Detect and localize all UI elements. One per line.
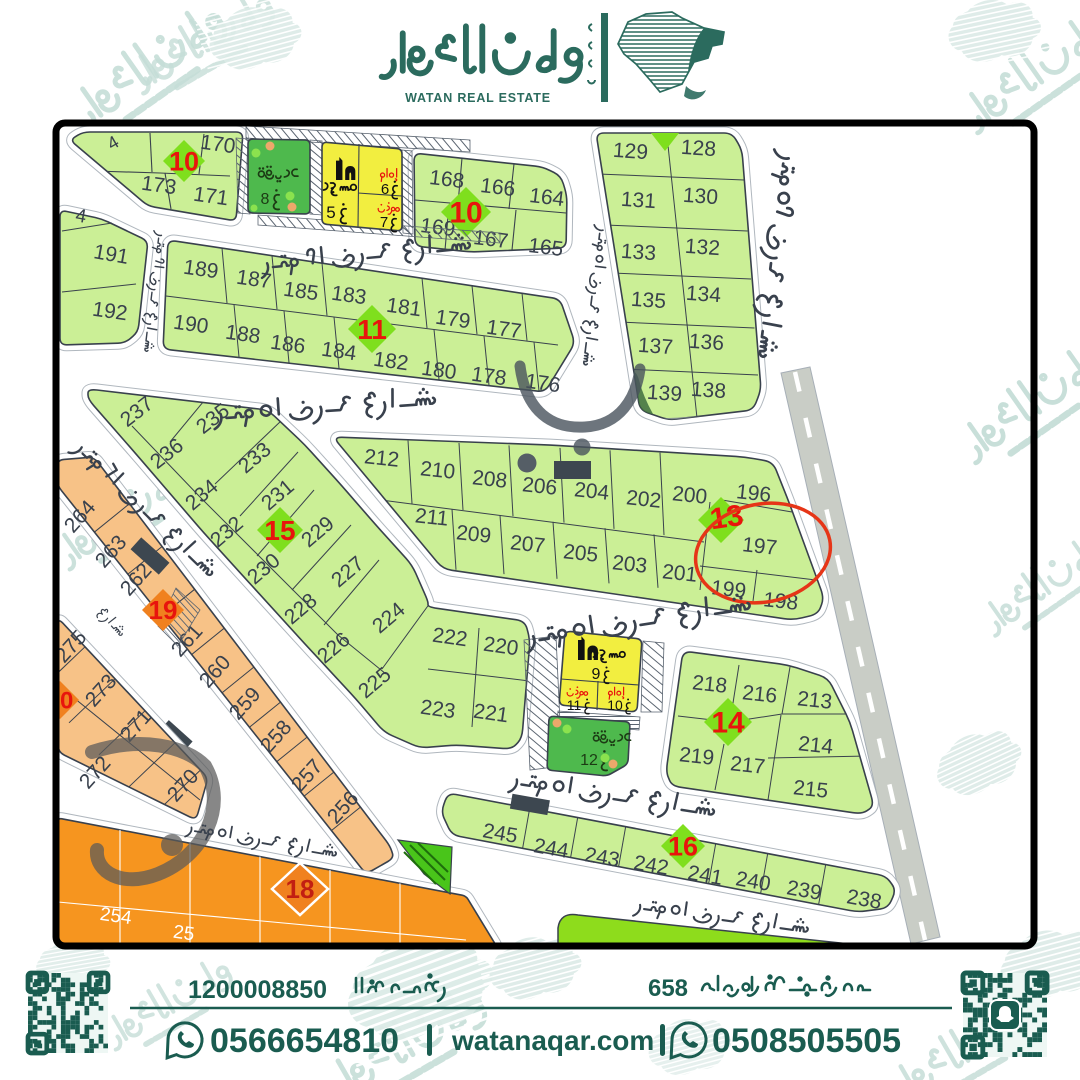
svg-text:182: 182: [372, 348, 410, 376]
svg-text:178: 178: [470, 363, 508, 391]
svg-text:190: 190: [172, 311, 210, 339]
svg-text:171: 171: [192, 183, 230, 211]
svg-text:134: 134: [685, 282, 722, 307]
svg-text:135: 135: [630, 288, 667, 313]
svg-text:658: 658: [648, 975, 688, 1002]
svg-text:189: 189: [182, 256, 220, 284]
svg-text:181: 181: [385, 294, 423, 322]
svg-text:170: 170: [199, 131, 237, 159]
svg-text:WATAN REAL ESTATE: WATAN REAL ESTATE: [405, 91, 551, 105]
svg-text:10: 10: [449, 197, 482, 230]
svg-text:9: 9: [592, 666, 601, 683]
svg-text:7: 7: [380, 214, 388, 231]
svg-text:212: 212: [363, 445, 400, 472]
svg-text:132: 132: [684, 235, 721, 260]
svg-text:18: 18: [286, 874, 315, 904]
svg-text:177: 177: [485, 316, 523, 344]
svg-text:221: 221: [472, 700, 510, 728]
svg-text:197: 197: [741, 533, 778, 560]
svg-text:210: 210: [419, 457, 456, 484]
svg-text:133: 133: [620, 240, 657, 265]
svg-text:165: 165: [527, 234, 565, 261]
svg-text:215: 215: [792, 776, 829, 803]
svg-text:205: 205: [562, 540, 599, 567]
svg-text:0566654810: 0566654810: [210, 1022, 399, 1060]
svg-text:167: 167: [472, 226, 510, 253]
svg-text:139: 139: [646, 381, 683, 406]
svg-text:202: 202: [625, 486, 662, 513]
svg-text:8: 8: [261, 191, 270, 208]
svg-text:164: 164: [528, 184, 566, 211]
svg-text:209: 209: [455, 521, 492, 548]
svg-text:179: 179: [434, 306, 472, 334]
svg-text:14: 14: [711, 707, 745, 740]
svg-text:214: 214: [797, 732, 835, 759]
svg-text:137: 137: [637, 334, 674, 359]
svg-text:220: 220: [482, 633, 520, 661]
svg-text:213: 213: [796, 687, 833, 714]
svg-text:5: 5: [326, 203, 335, 222]
svg-text:15: 15: [264, 515, 295, 546]
svg-text:254: 254: [99, 904, 134, 929]
svg-text:222: 222: [431, 624, 469, 652]
svg-text:201: 201: [661, 560, 698, 587]
svg-text:20: 20: [47, 687, 74, 714]
svg-text:10: 10: [169, 146, 199, 176]
svg-text:184: 184: [320, 338, 358, 366]
svg-text:192: 192: [91, 298, 129, 326]
svg-text:180: 180: [420, 357, 458, 385]
svg-text:223: 223: [419, 696, 457, 724]
svg-text:218: 218: [691, 671, 728, 698]
svg-text:204: 204: [573, 478, 611, 505]
svg-text:10: 10: [607, 697, 623, 713]
svg-text:211: 211: [414, 504, 450, 530]
svg-text:watanaqar.com: watanaqar.com: [451, 1025, 654, 1056]
svg-text:207: 207: [509, 531, 546, 558]
svg-text:185: 185: [282, 278, 320, 306]
svg-text:6: 6: [381, 181, 389, 198]
svg-text:243: 243: [583, 843, 622, 872]
svg-text:128: 128: [680, 136, 717, 161]
svg-text:244: 244: [532, 834, 571, 863]
svg-text:219: 219: [678, 743, 715, 770]
svg-text:11: 11: [357, 314, 387, 345]
svg-text:208: 208: [471, 466, 508, 493]
svg-text:129: 129: [612, 139, 649, 164]
svg-text:203: 203: [611, 551, 648, 578]
svg-text:11: 11: [567, 697, 582, 713]
svg-text:13: 13: [708, 499, 746, 536]
svg-text:168: 168: [428, 166, 466, 193]
svg-text:200: 200: [671, 482, 708, 509]
svg-text:131: 131: [620, 188, 657, 213]
svg-text:16: 16: [668, 831, 698, 861]
svg-text:206: 206: [521, 473, 558, 500]
svg-text:216: 216: [741, 681, 778, 708]
svg-text:136: 136: [688, 330, 725, 355]
svg-text:19: 19: [149, 595, 178, 625]
svg-text:25: 25: [172, 922, 196, 946]
svg-text:217: 217: [729, 752, 766, 779]
svg-text:1200008850: 1200008850: [188, 976, 327, 1004]
svg-text:183: 183: [330, 282, 368, 310]
svg-text:186: 186: [269, 331, 307, 359]
svg-text:12: 12: [580, 752, 598, 769]
svg-text:0508505505: 0508505505: [712, 1022, 901, 1060]
svg-text:130: 130: [682, 184, 719, 209]
svg-text:188: 188: [224, 321, 262, 349]
svg-text:166: 166: [479, 174, 517, 201]
svg-text:138: 138: [690, 378, 727, 403]
